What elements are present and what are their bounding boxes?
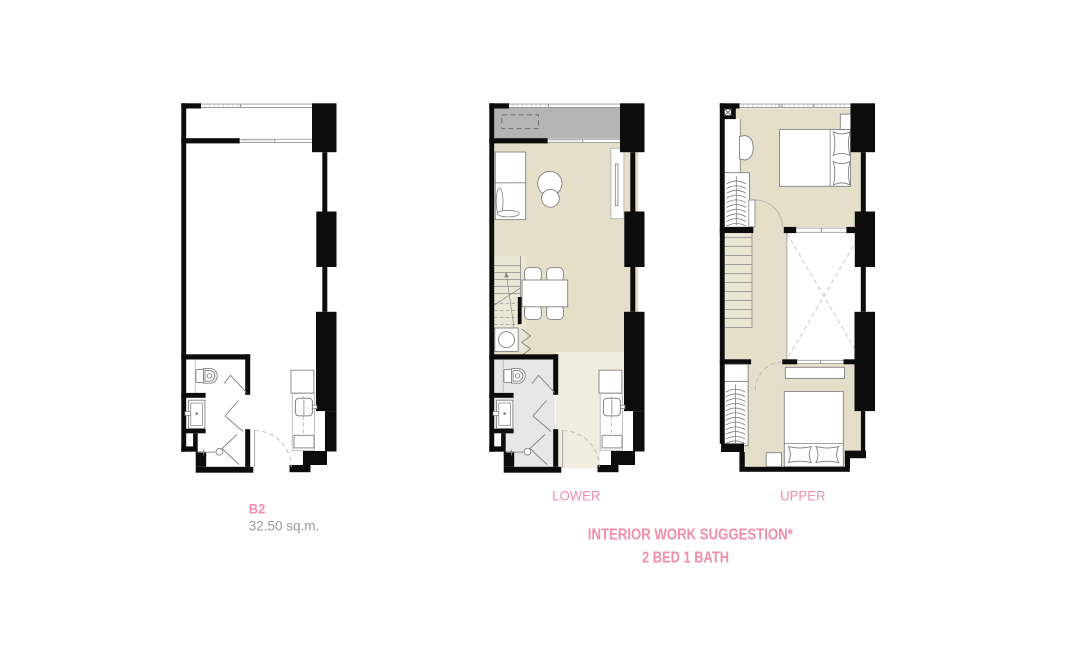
- svg-text:B2: B2: [249, 501, 266, 516]
- svg-text:INTERIOR WORK SUGGESTION*: INTERIOR WORK SUGGESTION*: [588, 526, 794, 543]
- svg-text:32.50 sq.m.: 32.50 sq.m.: [249, 518, 319, 534]
- svg-text:LOWER: LOWER: [552, 488, 600, 503]
- svg-text:UPPER: UPPER: [780, 488, 826, 503]
- svg-text:2 BED 1 BATH: 2 BED 1 BATH: [642, 550, 729, 567]
